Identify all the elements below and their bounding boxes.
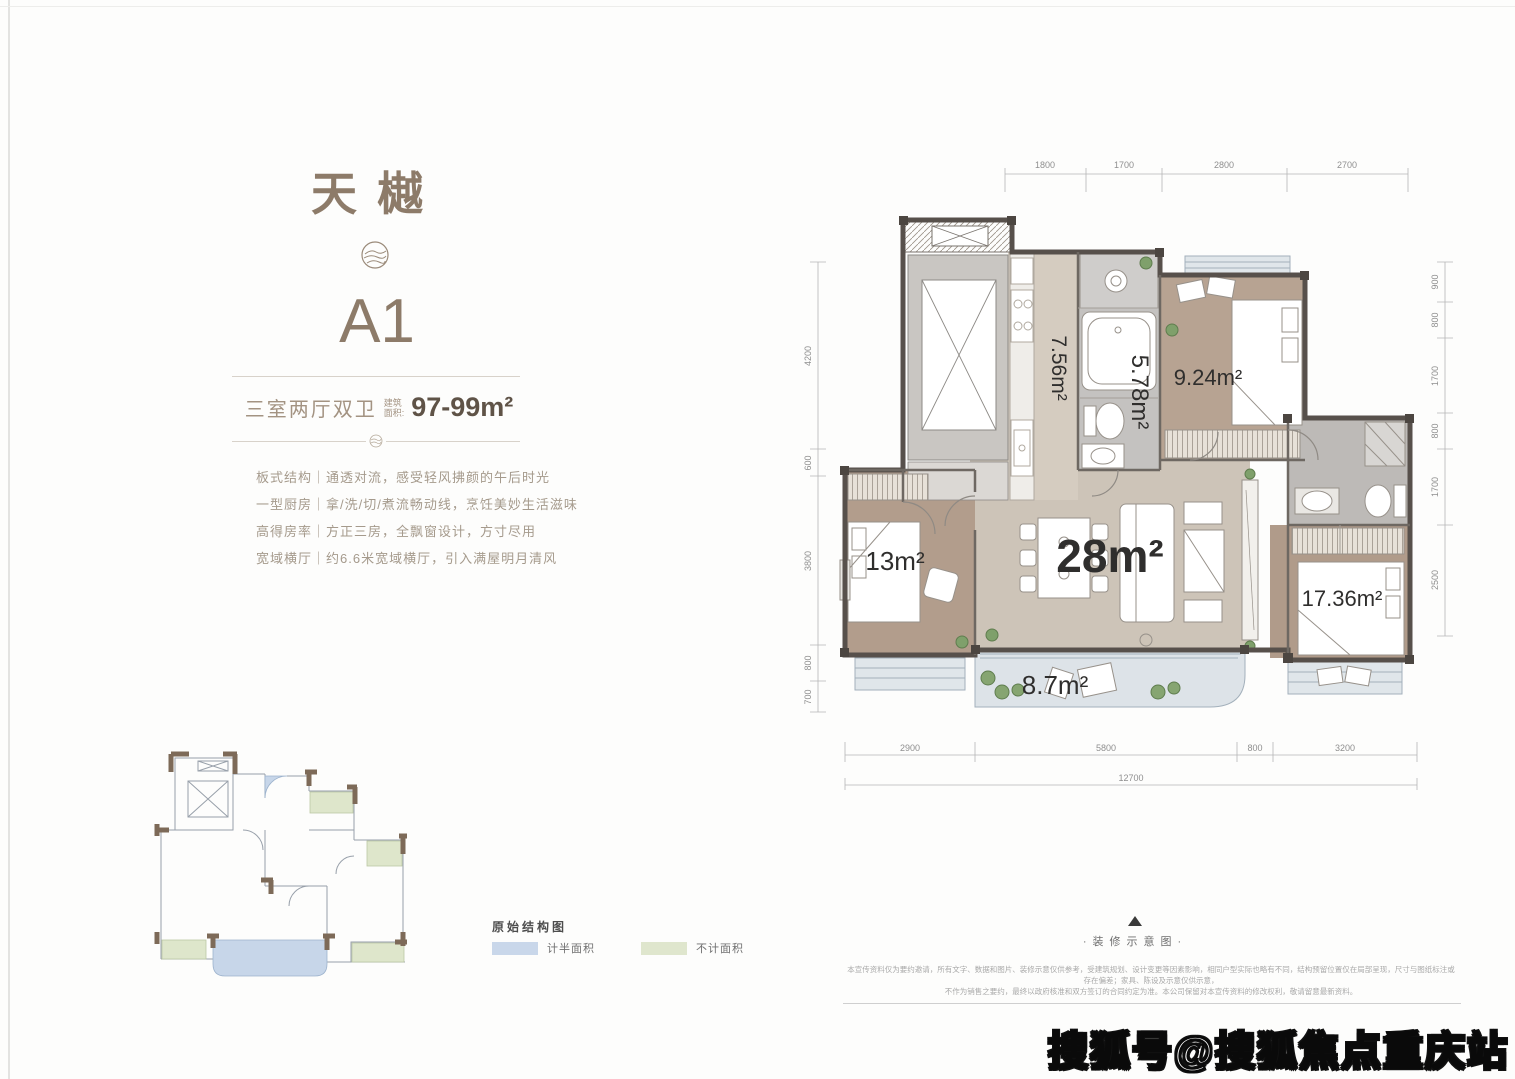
schematic-marker: ·装修示意图· — [1040, 916, 1230, 949]
page-edge-top — [0, 6, 1515, 7]
disclaimer-text: 本宣传资料仅为要约邀请，所有文字、数据和图片、装修示意仅供参考，受建筑规划、设计… — [845, 964, 1457, 997]
feature-line: 一型厨房｜拿/洗/切/煮流畅动线，烹饪美妙生活滋味 — [256, 491, 578, 518]
disclaimer-line: 本宣传资料仅为要约邀请，所有文字、数据和图片、装修示意仅供参考，受建筑规划、设计… — [845, 964, 1457, 986]
room-label-bath: 5.78m² — [1126, 355, 1153, 430]
dim-right-2: 800 — [1430, 312, 1440, 327]
room-label-living: 28m² — [1056, 530, 1163, 582]
feature-line: 宽域横厅｜约6.6米宽域横厅，引入满屋明月清风 — [256, 545, 578, 572]
dim-left-4: 800 — [803, 655, 813, 670]
floor-plan: 7.56m² 5.78m² 9.24m² 28m² 13m² 17.36m² 8… — [780, 130, 1480, 795]
dim-bottom-4: 3200 — [1335, 743, 1355, 753]
disclaimer-line: 不作为销售之要约，最终以政府核准和双方签订的合同约定为准。本公司保留对本宣传资料… — [845, 986, 1457, 997]
dim-top-4: 2700 — [1337, 160, 1357, 170]
divider-top — [232, 376, 520, 377]
dim-left-5: 700 — [803, 689, 813, 704]
room-label-bedroom-top: 9.24m² — [1174, 365, 1242, 390]
brand-title: 天樾 — [232, 158, 522, 224]
room-label-balcony: 8.7m² — [1022, 670, 1089, 700]
legend-swatch-not-counted — [641, 942, 687, 955]
spec-row: 三室两厅双卫 建筑 面积: 97-99m² — [238, 392, 520, 423]
dim-left-1: 4200 — [803, 346, 813, 366]
dim-right-5: 1700 — [1430, 477, 1440, 497]
elevator-shaft — [903, 222, 1012, 500]
dim-top-1: 1800 — [1035, 160, 1055, 170]
dim-left-2: 600 — [803, 455, 813, 470]
dim-top-3: 2800 — [1214, 160, 1234, 170]
triangle-up-icon — [1128, 916, 1142, 926]
kitchen-counter — [1010, 254, 1034, 500]
schematic-label: ·装修示意图· — [1040, 933, 1230, 949]
legend-swatch-half-counted — [492, 942, 538, 955]
feature-list: 板式结构｜通透对流，感受轻风拂颜的午后时光 一型厨房｜拿/洗/切/煮流畅动线，烹… — [256, 464, 578, 572]
watermark-text: 搜狐号@搜狐焦点重庆站 — [1048, 1019, 1509, 1077]
room-label-bedroom-left: 13m² — [865, 546, 925, 576]
feature-line: 高得房率｜方正三房，全飘窗设计，方寸尽用 — [256, 518, 578, 545]
dim-bottom-1: 2900 — [900, 743, 920, 753]
brand-logo-icon — [360, 240, 390, 275]
feature-line: 板式结构｜通透对流，感受轻风拂颜的午后时光 — [256, 464, 578, 491]
legend-label-half-counted: 计半面积 — [547, 940, 595, 956]
divider-logo-icon — [366, 434, 386, 453]
dim-total: 12700 — [1118, 773, 1143, 783]
unit-name: A1 — [232, 286, 522, 357]
original-structure-diagram — [95, 736, 485, 1013]
dim-right-3: 1700 — [1430, 366, 1440, 386]
spec-layout: 三室两厅双卫 — [245, 393, 377, 422]
dim-bottom-3: 800 — [1247, 743, 1262, 753]
spec-area-value: 97-99m² — [411, 392, 513, 423]
page-edge-left — [8, 0, 10, 1079]
dim-right-4: 800 — [1430, 423, 1440, 438]
dim-left-3: 3800 — [803, 551, 813, 571]
dim-bottom-2: 5800 — [1096, 743, 1116, 753]
dim-right-1: 900 — [1430, 274, 1440, 289]
room-label-bedroom-master: 17.36m² — [1302, 586, 1383, 611]
spec-area-label: 建筑 面积: — [384, 398, 405, 418]
room-label-kitchen: 7.56m² — [1047, 335, 1070, 400]
footer-divider — [843, 1003, 1461, 1004]
dim-top-2: 1700 — [1114, 160, 1134, 170]
structure-diagram-title: 原始结构图 — [492, 918, 567, 935]
legend-label-not-counted: 不计面积 — [696, 940, 744, 956]
dim-right-6: 2500 — [1430, 570, 1440, 590]
structure-diagram-legend: 计半面积 不计面积 — [492, 940, 744, 956]
brochure-page: 天樾 A1 三室两厅双卫 建筑 面积: 97-99m² 板式结构｜通透对流，感受… — [0, 0, 1515, 1079]
